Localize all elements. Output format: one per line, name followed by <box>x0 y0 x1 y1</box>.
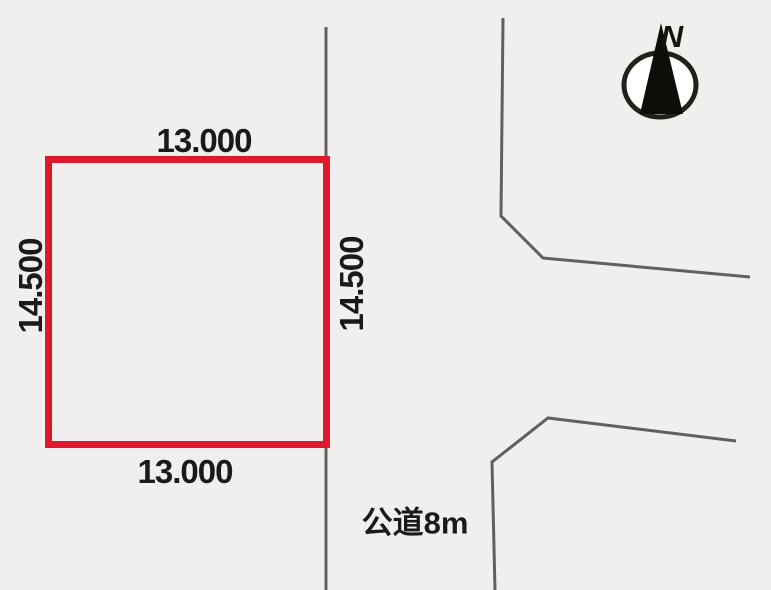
dimension-label-left: 14.500 <box>12 239 50 334</box>
plot-boundary <box>45 156 330 448</box>
dimension-label-top: 13.000 <box>157 122 252 160</box>
dimension-label-bottom: 13.000 <box>138 453 233 491</box>
compass-north-label: N <box>661 19 683 55</box>
dimension-label-right: 14.500 <box>333 237 371 332</box>
road-line-lower-right <box>492 418 736 590</box>
site-plan-diagram: 13.000 13.000 14.500 14.500 公道8m N <box>0 0 771 590</box>
road-line-upper-right <box>501 18 750 277</box>
road-label: 公道8m <box>362 498 469 543</box>
